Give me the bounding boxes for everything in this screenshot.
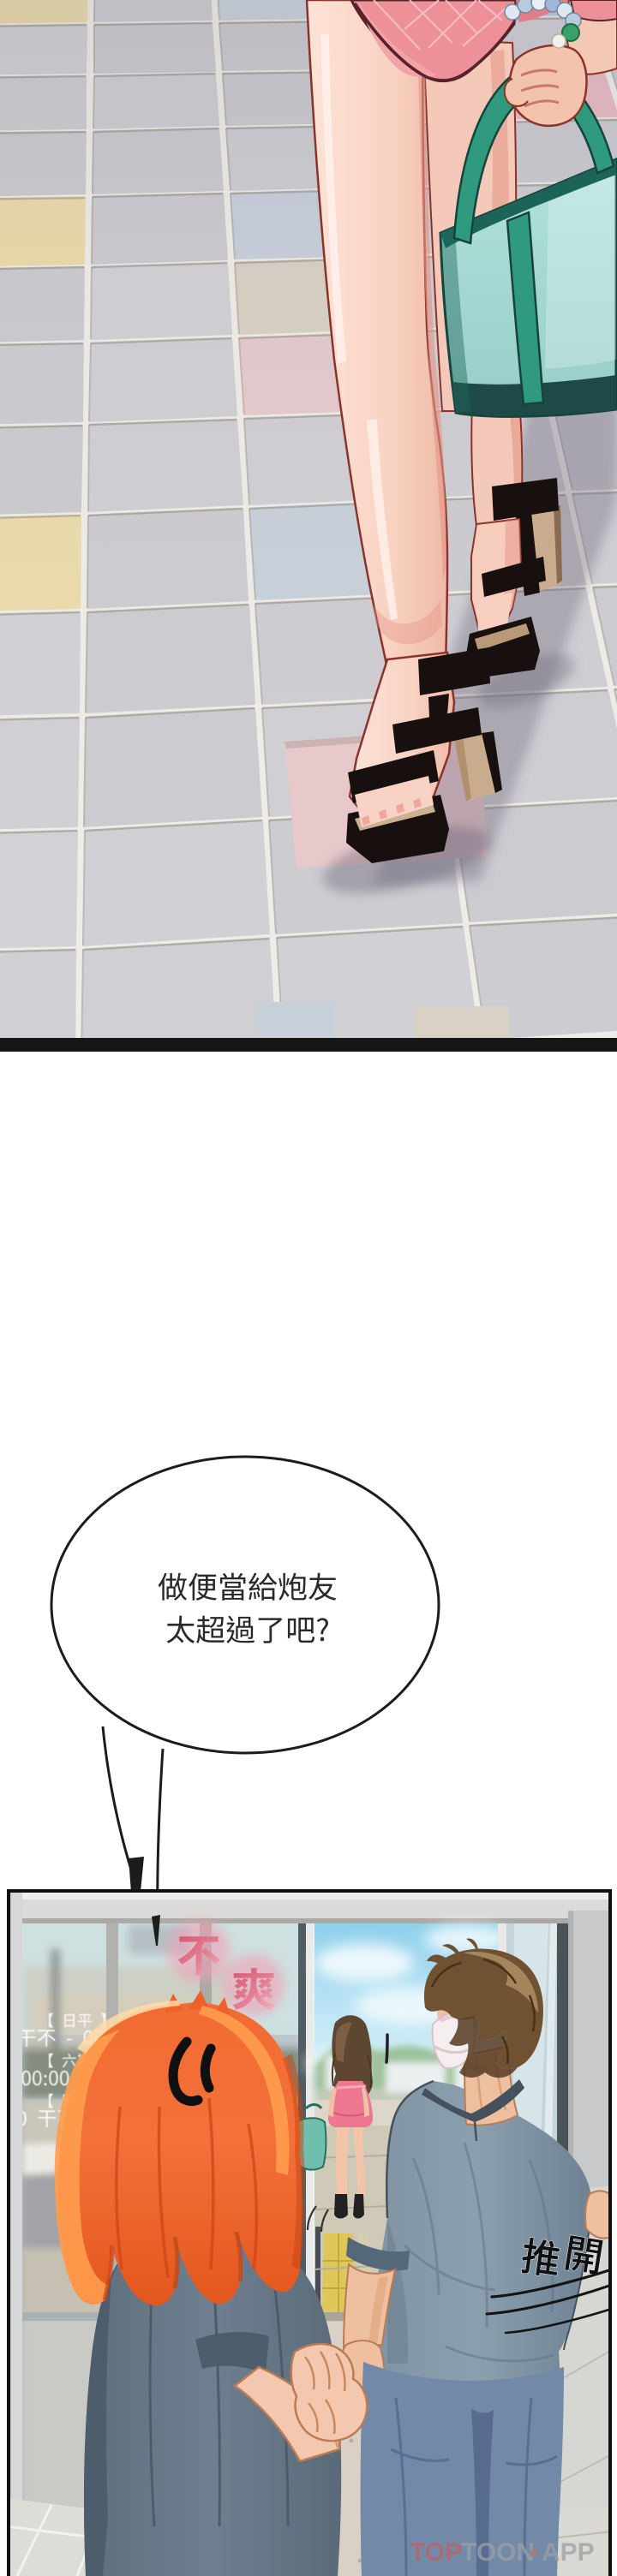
svg-text:TOP: TOP: [410, 2538, 462, 2567]
svg-text:TOON: TOON: [461, 2538, 535, 2567]
svg-text:APP: APP: [542, 2538, 595, 2567]
